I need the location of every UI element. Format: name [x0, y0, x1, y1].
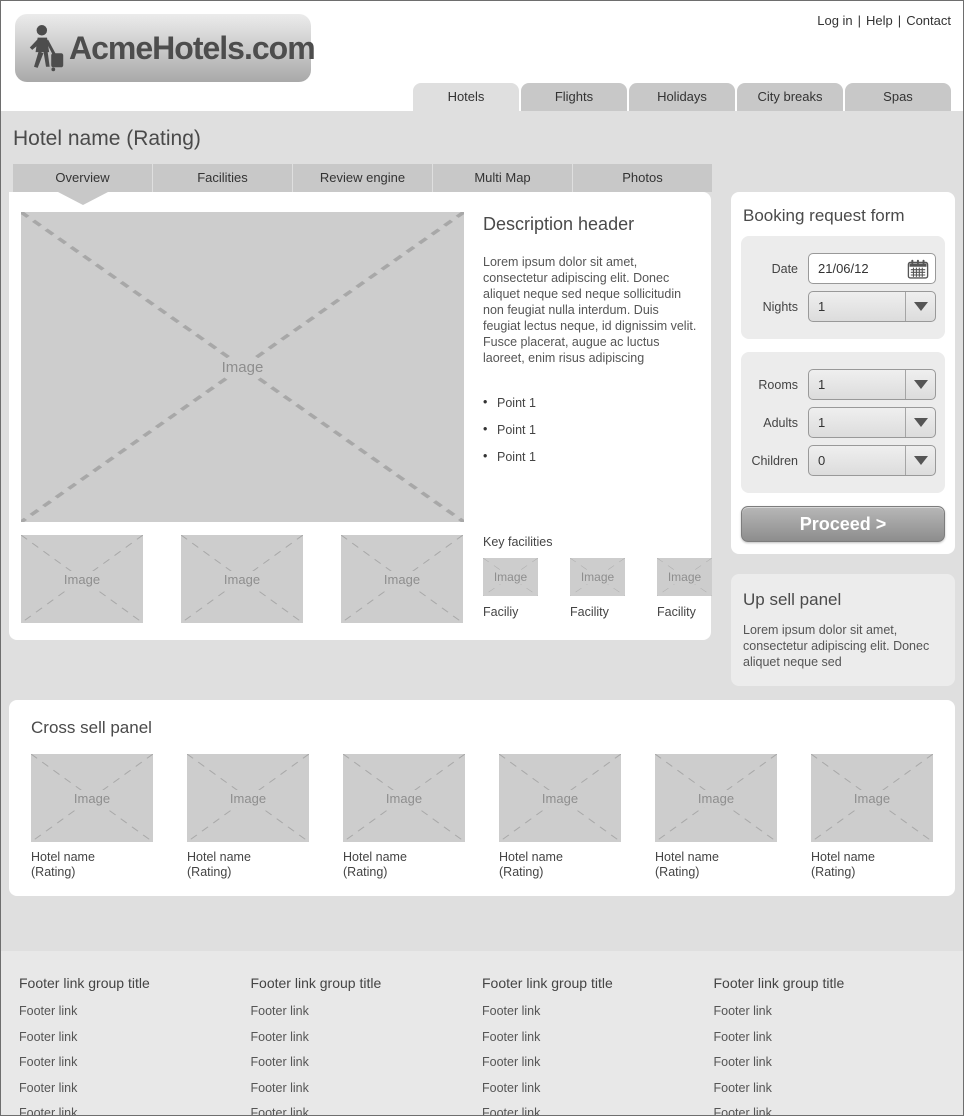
tab-review-engine-label: Review engine	[320, 170, 405, 185]
booking-request-form: Booking request form Date	[731, 192, 955, 554]
bullet-list: Point 1 Point 1 Point 1	[483, 396, 699, 464]
hotel-name: Hotel name	[343, 850, 465, 865]
image-placeholder-label: Image	[67, 790, 117, 807]
footer-group: Footer link group title Footer link Foot…	[251, 975, 483, 1116]
sidebar: Booking request form Date	[731, 192, 955, 686]
page: AcmeHotels.com Log in|Help|Contact Hotel…	[0, 0, 964, 1116]
tab-overview[interactable]: Overview	[13, 164, 152, 192]
image-placeholder-label: Image	[379, 790, 429, 807]
date-label: Date	[750, 262, 808, 276]
tab-city-breaks[interactable]: City breaks	[737, 83, 843, 111]
footer-link[interactable]: Footer link	[251, 1004, 483, 1018]
footer-group: Footer link group title Footer link Foot…	[482, 975, 714, 1116]
footer-link[interactable]: Footer link	[482, 1081, 714, 1095]
bullet-point: Point 1	[483, 396, 699, 410]
bullet-point: Point 1	[483, 450, 699, 464]
image-placeholder-label: Image	[217, 571, 267, 588]
cross-sell-title: Cross sell panel	[31, 718, 941, 738]
cross-sell-card[interactable]: Image Hotel name(Rating)	[31, 754, 153, 880]
facility-image-placeholder: Image	[483, 558, 538, 596]
footer-link[interactable]: Footer link	[19, 1030, 251, 1044]
image-placeholder-label: Image	[578, 570, 617, 584]
hotel-name: Hotel name	[499, 850, 621, 865]
gallery-thumbnails: Image Image Image	[21, 535, 463, 623]
nights-select[interactable]: 1	[808, 291, 936, 322]
upsell-panel: Up sell panel Lorem ipsum dolor sit amet…	[731, 574, 955, 686]
cross-sell-card[interactable]: Image Hotel name(Rating)	[499, 754, 621, 880]
hotel-name: Hotel name	[811, 850, 933, 865]
contact-link[interactable]: Contact	[906, 13, 951, 28]
help-link[interactable]: Help	[866, 13, 893, 28]
hotel-image-placeholder: Image	[655, 754, 777, 842]
hotel-image-placeholder: Image	[343, 754, 465, 842]
footer-link[interactable]: Footer link	[251, 1030, 483, 1044]
facility-label: Facility	[570, 605, 632, 619]
upsell-body: Lorem ipsum dolor sit amet, consectetur …	[743, 622, 943, 670]
footer-link[interactable]: Footer link	[482, 1030, 714, 1044]
footer-link[interactable]: Footer link	[19, 1055, 251, 1069]
image-placeholder-label: Image	[223, 790, 273, 807]
key-facilities: Key facilities Image Faciliy	[483, 535, 719, 623]
hotel-name: Hotel name	[655, 850, 777, 865]
utility-nav: Log in|Help|Contact	[817, 13, 951, 28]
cross-sell-card[interactable]: Image Hotel name(Rating)	[655, 754, 777, 880]
hotel-rating: (Rating)	[31, 865, 153, 880]
image-placeholder-label: Image	[665, 570, 704, 584]
tab-review-engine[interactable]: Review engine	[293, 164, 432, 192]
footer-link[interactable]: Footer link	[251, 1106, 483, 1116]
date-input[interactable]	[818, 261, 888, 276]
overview-panel: Image Description header Lorem ipsum dol…	[9, 192, 711, 640]
tab-photos-label: Photos	[622, 170, 662, 185]
key-facilities-title: Key facilities	[483, 535, 719, 549]
hotel-image-placeholder: Image	[31, 754, 153, 842]
footer-link[interactable]: Footer link	[482, 1055, 714, 1069]
chevron-down-icon	[905, 370, 935, 399]
active-tab-arrow	[58, 192, 108, 205]
footer-link[interactable]: Footer link	[19, 1004, 251, 1018]
hotel-rating: (Rating)	[811, 865, 933, 880]
cross-sell-card[interactable]: Image Hotel name(Rating)	[343, 754, 465, 880]
hotel-name: Hotel name	[31, 850, 153, 865]
footer-link[interactable]: Footer link	[714, 1030, 946, 1044]
description-column: Description header Lorem ipsum dolor sit…	[483, 212, 699, 522]
rooms-label: Rooms	[750, 378, 808, 392]
chevron-down-icon	[905, 408, 935, 437]
footer-link[interactable]: Footer link	[714, 1004, 946, 1018]
primary-nav: Hotels Flights Holidays City breaks Spas	[413, 83, 951, 111]
gallery-thumbnail[interactable]: Image	[341, 535, 463, 623]
upsell-title: Up sell panel	[743, 590, 943, 610]
hotel-rating: (Rating)	[655, 865, 777, 880]
image-placeholder-label: Image	[377, 571, 427, 588]
footer-link[interactable]: Footer link	[19, 1081, 251, 1095]
site-footer: Footer link group title Footer link Foot…	[1, 951, 963, 1116]
separator: |	[898, 13, 901, 28]
footer-group-title: Footer link group title	[482, 975, 714, 991]
image-placeholder-label: Image	[491, 570, 530, 584]
login-link[interactable]: Log in	[817, 13, 852, 28]
tab-overview-label: Overview	[55, 170, 109, 185]
tab-facilities-label: Facilities	[197, 170, 248, 185]
footer-link[interactable]: Footer link	[482, 1004, 714, 1018]
footer-link[interactable]: Footer link	[251, 1055, 483, 1069]
page-title: Hotel name (Rating)	[13, 127, 951, 151]
traveler-icon	[25, 24, 67, 72]
logo-text: AcmeHotels.com	[69, 30, 315, 67]
nights-label: Nights	[750, 300, 808, 314]
tab-photos[interactable]: Photos	[573, 164, 712, 192]
hotel-rating: (Rating)	[187, 865, 309, 880]
gallery-thumbnail[interactable]: Image	[21, 535, 143, 623]
footer-link[interactable]: Footer link	[19, 1106, 251, 1116]
hotel-image-placeholder: Image	[811, 754, 933, 842]
facility-item: Image Facility	[570, 558, 632, 619]
tab-multi-map[interactable]: Multi Map	[433, 164, 572, 192]
facility-image-placeholder: Image	[570, 558, 625, 596]
section-tabs: Overview Facilities Review engine Multi …	[13, 164, 955, 192]
facility-image-placeholder: Image	[657, 558, 712, 596]
description-header: Description header	[483, 214, 699, 235]
hotel-image-placeholder: Image	[499, 754, 621, 842]
description-body: Lorem ipsum dolor sit amet, consectetur …	[483, 254, 699, 366]
cross-sell-card[interactable]: Image Hotel name(Rating)	[187, 754, 309, 880]
hotel-name: Hotel name	[187, 850, 309, 865]
image-placeholder-label: Image	[57, 571, 107, 588]
cross-sell-panel: Cross sell panel Image Hotel name(Rating…	[9, 700, 955, 896]
hotel-rating: (Rating)	[499, 865, 621, 880]
footer-link[interactable]: Footer link	[714, 1081, 946, 1095]
separator: |	[858, 13, 861, 28]
image-placeholder-label: Image	[847, 790, 897, 807]
rooms-select[interactable]: 1	[808, 369, 936, 400]
footer-link[interactable]: Footer link	[251, 1081, 483, 1095]
facility-item: Image Facility	[657, 558, 719, 619]
chevron-down-icon	[905, 446, 935, 475]
tab-flights[interactable]: Flights	[521, 83, 627, 111]
footer-link[interactable]: Footer link	[482, 1106, 714, 1116]
hotel-image-placeholder: Image	[187, 754, 309, 842]
bullet-point: Point 1	[483, 423, 699, 437]
footer-group-title: Footer link group title	[19, 975, 251, 991]
occupancy-group: Rooms 1 Adults 1	[741, 352, 945, 493]
adults-label: Adults	[750, 416, 808, 430]
adults-value: 1	[809, 415, 905, 430]
tab-hotels[interactable]: Hotels	[413, 83, 519, 111]
facility-label: Faciliy	[483, 605, 545, 619]
date-nights-group: Date	[741, 236, 945, 339]
footer-link[interactable]: Footer link	[714, 1106, 946, 1116]
proceed-button[interactable]: Proceed >	[741, 506, 945, 542]
tab-facilities[interactable]: Facilities	[153, 164, 292, 192]
content-row: Image Description header Lorem ipsum dol…	[9, 192, 955, 686]
booking-form-title: Booking request form	[743, 206, 945, 226]
children-value: 0	[809, 453, 905, 468]
children-label: Children	[750, 454, 808, 468]
footer-group: Footer link group title Footer link Foot…	[714, 975, 946, 1116]
content-band: Hotel name (Rating) Overview Facilities …	[1, 111, 963, 951]
hero-image-placeholder: Image	[21, 212, 464, 522]
image-placeholder-label: Image	[215, 358, 271, 377]
image-placeholder-label: Image	[691, 790, 741, 807]
image-placeholder-label: Image	[535, 790, 585, 807]
nights-value: 1	[809, 299, 905, 314]
footer-group-title: Footer link group title	[714, 975, 946, 991]
tab-spas[interactable]: Spas	[845, 83, 951, 111]
calendar-icon[interactable]	[907, 259, 929, 279]
site-header: AcmeHotels.com Log in|Help|Contact Hotel…	[1, 1, 963, 111]
footer-group: Footer link group title Footer link Foot…	[19, 975, 251, 1116]
children-select[interactable]: 0	[808, 445, 936, 476]
facility-label: Facility	[657, 605, 719, 619]
tab-holidays[interactable]: Holidays	[629, 83, 735, 111]
adults-select[interactable]: 1	[808, 407, 936, 438]
cross-sell-card[interactable]: Image Hotel name(Rating)	[811, 754, 933, 880]
tab-multi-map-label: Multi Map	[474, 170, 530, 185]
gallery-thumbnail[interactable]: Image	[181, 535, 303, 623]
chevron-down-icon	[905, 292, 935, 321]
logo[interactable]: AcmeHotels.com	[15, 14, 311, 82]
hotel-rating: (Rating)	[343, 865, 465, 880]
footer-group-title: Footer link group title	[251, 975, 483, 991]
date-field[interactable]	[808, 253, 936, 284]
footer-link[interactable]: Footer link	[714, 1055, 946, 1069]
rooms-value: 1	[809, 377, 905, 392]
facility-item: Image Faciliy	[483, 558, 545, 619]
